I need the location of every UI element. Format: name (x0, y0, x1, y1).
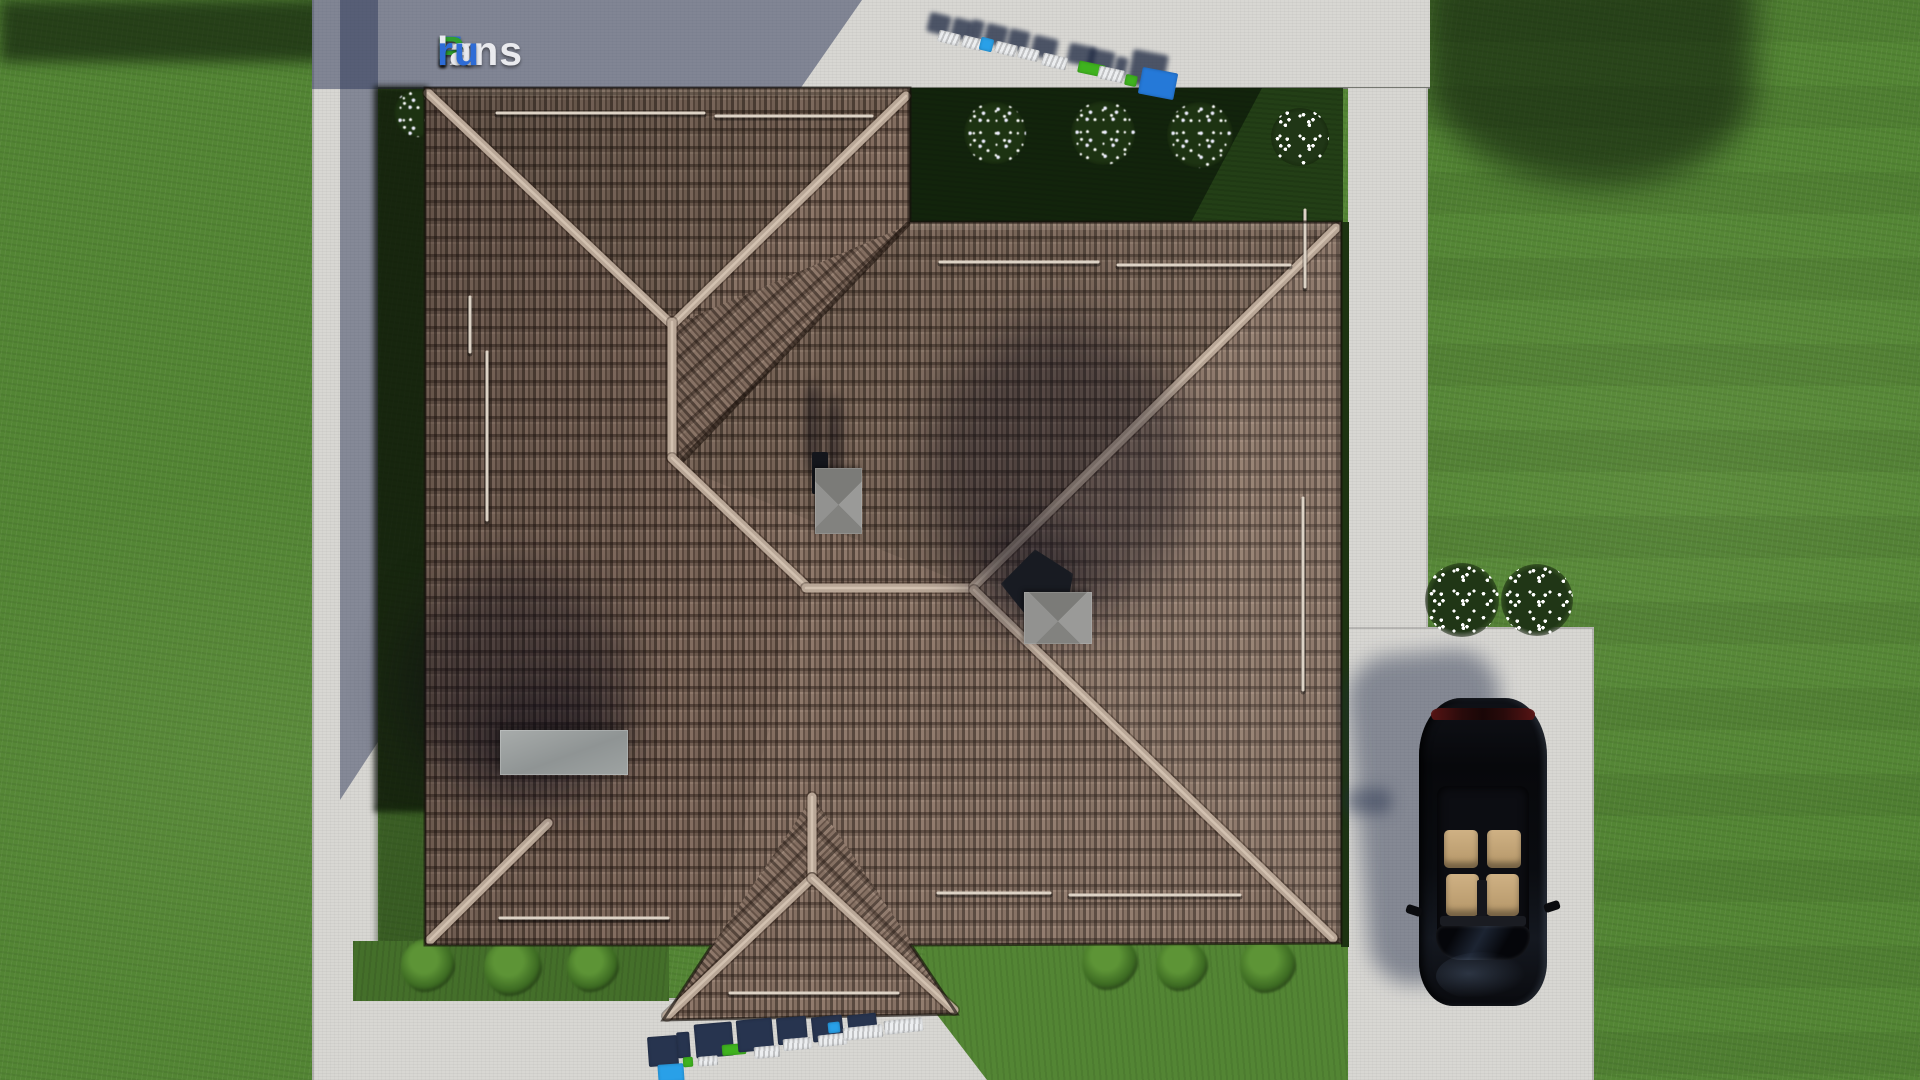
aerial-render-scene: FixPlans.ru (0, 0, 1920, 1080)
car-group (0, 0, 1920, 1080)
car-hood-highlight (1436, 952, 1530, 1000)
car-center-console (1477, 880, 1487, 916)
car-rear-seat-right (1487, 830, 1521, 868)
car-rear-seat-left (1444, 830, 1478, 868)
car-front-seat-right (1486, 874, 1519, 916)
watermark-segment: ru (437, 28, 480, 75)
car-front-seat-left (1446, 874, 1479, 916)
car-taillights (1431, 708, 1535, 720)
car-mirror-shadow (1346, 788, 1392, 814)
car-dashboard (1440, 916, 1526, 926)
